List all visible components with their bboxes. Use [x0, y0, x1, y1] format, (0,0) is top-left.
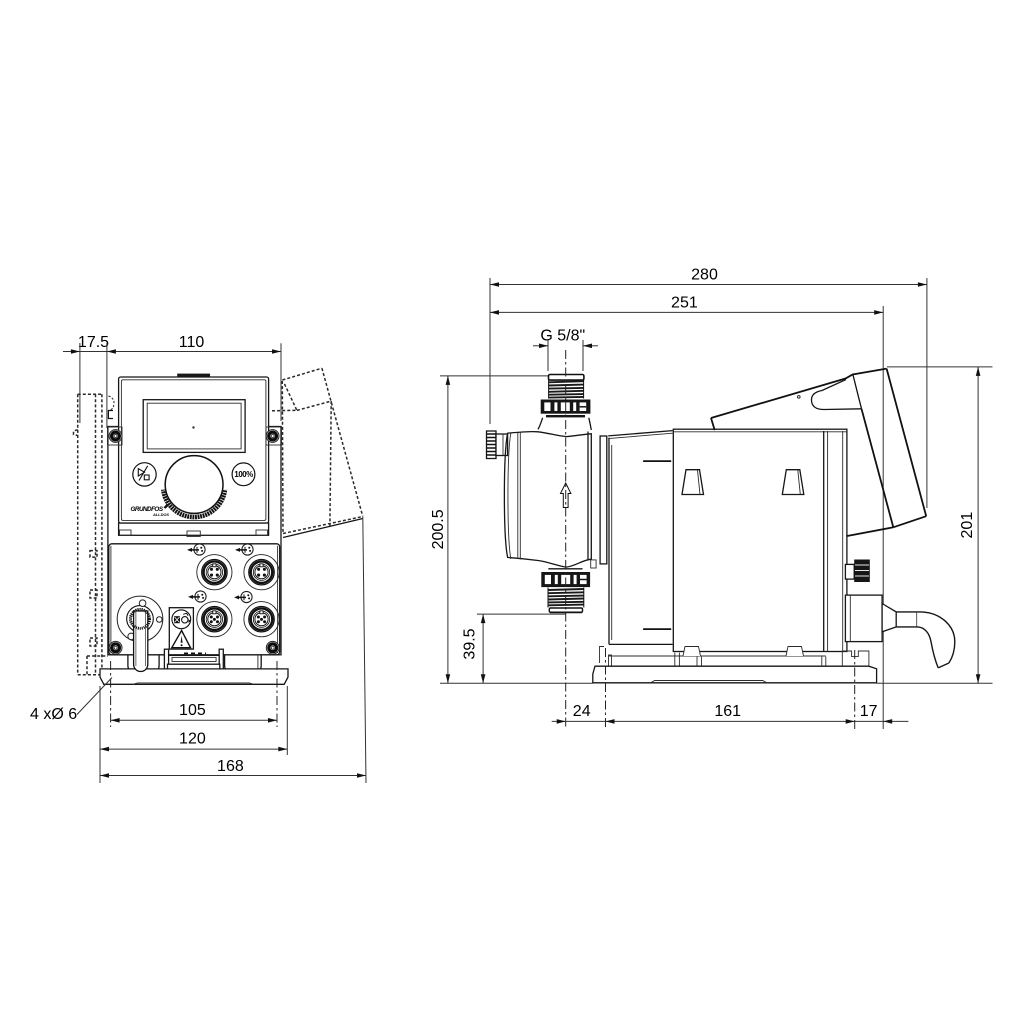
- svg-text:39.5: 39.5: [461, 628, 478, 659]
- svg-text:280: 280: [691, 267, 718, 284]
- svg-text:201: 201: [959, 512, 976, 539]
- svg-text:200.5: 200.5: [430, 509, 447, 549]
- svg-text:100%: 100%: [234, 470, 253, 479]
- svg-text:17.5: 17.5: [78, 334, 109, 351]
- svg-text:24: 24: [573, 703, 591, 720]
- svg-text:4 xØ 6: 4 xØ 6: [30, 706, 77, 723]
- svg-text:120: 120: [179, 730, 206, 747]
- svg-text:251: 251: [671, 295, 698, 312]
- svg-text:161: 161: [714, 703, 741, 720]
- svg-text:110: 110: [179, 334, 205, 351]
- svg-text:17: 17: [860, 703, 878, 720]
- svg-text:168: 168: [217, 758, 244, 775]
- svg-text:G 5/8": G 5/8": [540, 328, 585, 345]
- svg-text:ALLDOS: ALLDOS: [152, 512, 169, 517]
- svg-text:105: 105: [179, 702, 206, 719]
